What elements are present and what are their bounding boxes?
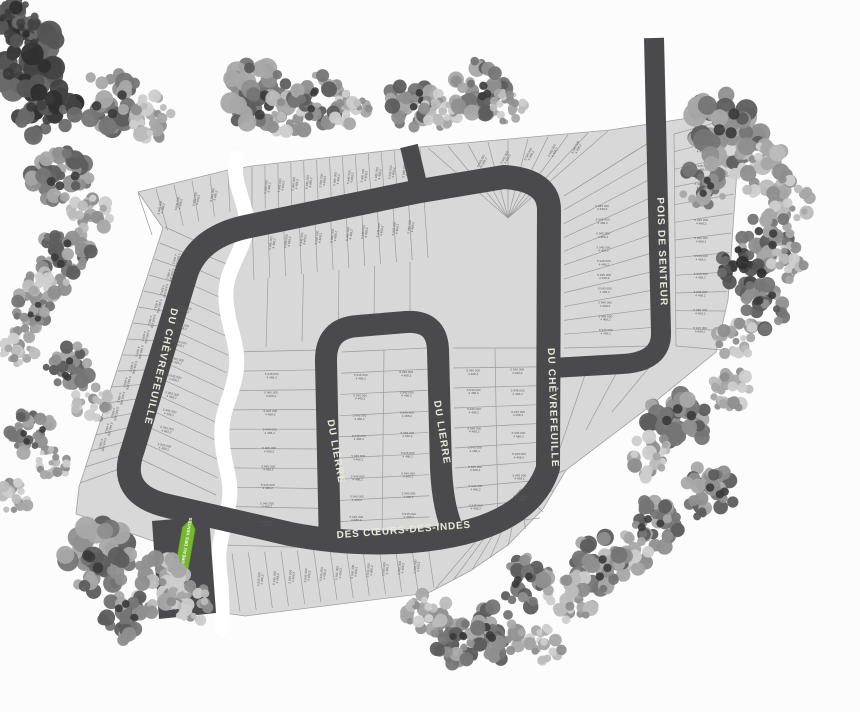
foliage-blob: [728, 381, 738, 391]
foliage-blob: [146, 130, 153, 137]
foliage-blob: [784, 265, 792, 273]
foliage-blob: [393, 80, 407, 94]
foliage-blob: [37, 21, 62, 46]
foliage-blob: [71, 181, 81, 191]
foliage-blob: [738, 137, 756, 155]
foliage-core: [23, 438, 30, 445]
foliage-blob: [631, 450, 639, 458]
foliage-blob: [717, 268, 727, 278]
tree-cluster: [0, 478, 33, 513]
foliage-blob: [727, 396, 739, 408]
foliage-blob: [166, 109, 175, 118]
foliage-blob: [62, 248, 74, 260]
foliage-blob: [277, 98, 285, 106]
foliage-blob: [562, 615, 571, 624]
lot-number-label: 5 945 0004 468,2: [469, 503, 483, 510]
foliage-blob: [102, 390, 112, 400]
foliage-blob: [23, 331, 35, 343]
foliage-blob: [343, 117, 356, 130]
foliage-blob: [177, 592, 185, 600]
foliage-blob: [48, 446, 54, 452]
tree-cluster: [522, 624, 567, 666]
lot-number-label: 5 945 0004 468,2: [467, 407, 481, 414]
foliage-blob: [195, 615, 206, 626]
foliage-blob: [31, 13, 39, 21]
foliage-blob: [740, 335, 746, 341]
foliage-blob: [385, 98, 400, 113]
foliage-core: [42, 115, 52, 125]
foliage-blob: [434, 614, 447, 627]
foliage-blob: [246, 87, 260, 101]
foliage-blob: [52, 150, 61, 159]
lot-number-label: 5 945 0004 468,2: [468, 465, 482, 472]
foliage-blob: [642, 465, 653, 476]
foliage-blob: [81, 109, 99, 127]
lot-number-label: 5 945 0004 468,2: [401, 471, 415, 478]
foliage-blob: [652, 453, 660, 461]
foliage-blob: [773, 305, 780, 312]
foliage-blob: [597, 532, 611, 546]
foliage-blob: [438, 633, 450, 645]
lot-number-label: 5 945 0004 468,2: [400, 431, 414, 438]
foliage-blob: [766, 186, 780, 200]
foliage-blob: [400, 91, 413, 104]
foliage-blob: [682, 419, 697, 434]
foliage-core: [66, 357, 73, 364]
foliage-blob: [794, 185, 803, 194]
foliage-core: [5, 9, 12, 16]
foliage-blob: [267, 121, 279, 133]
foliage-blob: [39, 151, 54, 166]
road-path-1: [409, 146, 420, 192]
foliage-blob: [97, 523, 113, 539]
foliage-blob: [36, 100, 46, 110]
foliage-blob: [779, 191, 788, 200]
foliage-blob: [95, 76, 108, 89]
foliage-blob: [694, 492, 708, 506]
foliage-core: [26, 102, 36, 112]
foliage-blob: [781, 248, 787, 254]
foliage-core: [687, 411, 697, 421]
foliage-core: [525, 573, 533, 581]
foliage-core: [64, 374, 71, 381]
foliage-blob: [748, 214, 759, 225]
subdivision-plan-svg: 5 945 0004 468,25 945 0004 468,25 945 00…: [0, 0, 860, 712]
foliage-blob: [671, 512, 681, 522]
foliage-blob: [519, 555, 530, 566]
foliage-blob: [316, 69, 329, 82]
lot-number-label: 5 945 0004 468,2: [400, 411, 414, 418]
foliage-blob: [80, 523, 91, 534]
foliage-blob: [12, 494, 22, 504]
foliage-blob: [36, 457, 43, 464]
foliage-blob: [296, 122, 311, 137]
foliage-core: [714, 124, 725, 135]
lot-number-label: 5 945 0004 468,2: [351, 454, 365, 461]
foliage-blob: [91, 382, 101, 392]
foliage-core: [35, 316, 41, 322]
foliage-blob: [642, 430, 656, 444]
foliage-blob: [747, 322, 757, 332]
foliage-blob: [223, 70, 240, 87]
foliage-blob: [431, 99, 441, 109]
foliage-blob: [34, 413, 46, 425]
foliage-blob: [100, 205, 107, 212]
tree-cluster: [43, 340, 96, 391]
foliage-blob: [739, 370, 752, 383]
foliage-blob: [51, 354, 62, 365]
foliage-core: [63, 239, 71, 247]
foliage-blob: [364, 105, 372, 113]
foliage-blob: [662, 441, 669, 448]
foliage-blob: [14, 313, 21, 320]
foliage-blob: [535, 572, 552, 589]
foliage-blob: [138, 594, 146, 602]
lot-number-label: 5 945 0004 468,2: [510, 368, 524, 375]
foliage-blob: [688, 195, 696, 203]
foliage-blob: [16, 412, 26, 422]
foliage-blob: [519, 99, 527, 107]
foliage-core: [459, 632, 466, 639]
foliage-blob: [305, 112, 314, 121]
foliage-blob: [611, 547, 628, 564]
foliage-blob: [139, 610, 147, 618]
lot-number-label: 5 945 0004 468,2: [511, 389, 525, 396]
foliage-blob: [690, 479, 705, 494]
site-plan-map: 5 945 0004 468,25 945 0004 468,25 945 00…: [0, 0, 860, 712]
foliage-blob: [679, 392, 695, 408]
foliage-core: [0, 14, 7, 21]
lot-number-label: 5 945 0004 468,2: [264, 391, 278, 398]
lot-number-label: 5 945 0004 468,2: [511, 410, 525, 417]
tree-cluster: [11, 74, 84, 145]
foliage-blob: [467, 80, 475, 88]
foliage-blob: [35, 272, 44, 281]
foliage-blob: [774, 316, 783, 325]
foliage-blob: [778, 175, 786, 183]
foliage-core: [755, 227, 763, 235]
lot-number-label: 5 945 0004 468,2: [265, 372, 279, 379]
foliage-blob: [766, 258, 777, 269]
foliage-blob: [682, 162, 697, 177]
lot-number-label: 5 945 0004 468,2: [261, 464, 275, 471]
foliage-blob: [82, 358, 92, 368]
foliage-blob: [503, 610, 513, 620]
foliage-core: [51, 253, 59, 261]
foliage-blob: [117, 634, 129, 646]
foliage-core: [71, 172, 80, 181]
foliage-blob: [77, 261, 86, 270]
foliage-blob: [608, 574, 619, 585]
foliage-blob: [30, 84, 47, 101]
foliage-blob: [439, 597, 452, 610]
lot-number-label: 5 945 0004 468,2: [513, 494, 527, 501]
foliage-blob: [74, 373, 89, 388]
foliage-blob: [8, 333, 20, 345]
lot-number-label: 5 945 0004 468,2: [694, 254, 708, 261]
foliage-blob: [85, 571, 95, 581]
foliage-blob: [135, 576, 150, 591]
foliage-blob: [71, 405, 80, 414]
foliage-core: [638, 523, 646, 531]
tree-cluster: [56, 515, 137, 598]
foliage-blob: [176, 612, 183, 619]
foliage-blob: [657, 539, 673, 555]
foliage-blob: [694, 430, 709, 445]
foliage-blob: [791, 242, 798, 249]
foliage-blob: [184, 580, 196, 592]
foliage-core: [514, 576, 522, 584]
foliage-blob: [56, 171, 65, 180]
foliage-blob: [54, 378, 62, 386]
foliage-blob: [353, 99, 361, 107]
lot-number-label: 5 945 0004 468,2: [597, 259, 611, 266]
foliage-blob: [43, 364, 50, 371]
foliage-blob: [408, 599, 415, 606]
foliage-core: [93, 563, 104, 574]
foliage-blob: [13, 478, 23, 488]
foliage-blob: [5, 345, 13, 353]
foliage-blob: [727, 496, 738, 507]
foliage-blob: [801, 208, 807, 214]
foliage-blob: [44, 277, 52, 285]
foliage-blob: [334, 117, 342, 125]
lot-number-label: 5 945 0004 468,2: [353, 414, 367, 421]
foliage-blob: [499, 118, 506, 125]
foliage-blob: [407, 618, 414, 625]
lot-number-label: 5 945 0004 468,2: [400, 390, 414, 397]
foliage-blob: [230, 96, 247, 113]
foliage-blob: [75, 210, 85, 220]
foliage-blob: [632, 436, 642, 446]
foliage-core: [115, 604, 123, 612]
foliage-blob: [52, 467, 62, 477]
foliage-blob: [97, 220, 111, 234]
foliage-blob: [459, 652, 473, 666]
foliage-core: [769, 229, 777, 237]
foliage-blob: [16, 446, 30, 460]
lot-number-label: 5 945 0004 468,2: [597, 245, 611, 252]
foliage-core: [449, 633, 456, 640]
foliage-blob: [24, 356, 31, 363]
foliage-core: [700, 190, 707, 197]
foliage-blob: [776, 261, 784, 269]
foliage-blob: [49, 230, 61, 242]
foliage-core: [57, 260, 65, 268]
tree-cluster: [501, 553, 555, 615]
foliage-blob: [581, 554, 596, 569]
tree-cluster: [490, 89, 529, 125]
foliage-blob: [425, 614, 434, 623]
lot-number-label: 5 945 0004 468,2: [349, 515, 363, 522]
foliage-blob: [271, 111, 278, 118]
foliage-core: [479, 82, 487, 90]
foliage-core: [117, 90, 127, 100]
foliage-blob: [56, 546, 74, 564]
tree-cluster: [709, 368, 754, 412]
foliage-core: [768, 291, 776, 299]
foliage-blob: [32, 442, 39, 449]
foliage-blob: [580, 539, 595, 554]
lot-number-label: 5 945 0004 468,2: [352, 434, 366, 441]
foliage-blob: [148, 89, 161, 102]
foliage-blob: [115, 573, 127, 585]
foliage-blob: [793, 214, 800, 221]
foliage-core: [122, 600, 130, 608]
lot-number-label: 5 945 0004 468,2: [599, 314, 613, 321]
foliage-blob: [413, 616, 425, 628]
lot-number-label: 5 945 0004 468,2: [261, 483, 275, 490]
foliage-blob: [662, 530, 673, 541]
foliage-blob: [60, 340, 73, 353]
foliage-blob: [708, 469, 719, 480]
lot-number-label: 5 945 0004 468,2: [401, 451, 415, 458]
foliage-blob: [529, 597, 538, 606]
foliage-blob: [15, 115, 28, 128]
foliage-blob: [693, 512, 701, 520]
foliage-blob: [3, 507, 9, 513]
lot-number-label: 5 945 0004 468,2: [694, 218, 708, 225]
foliage-blob: [457, 82, 468, 93]
foliage-blob: [757, 268, 767, 278]
lot-number-label: 5 945 0004 468,2: [598, 301, 612, 308]
foliage-blob: [746, 281, 755, 290]
foliage-blob: [451, 99, 466, 114]
foliage-core: [488, 634, 496, 642]
foliage-blob: [129, 120, 138, 129]
foliage-blob: [444, 114, 451, 121]
foliage-blob: [244, 63, 255, 74]
foliage-core: [47, 177, 56, 186]
foliage-blob: [84, 244, 98, 258]
foliage-core: [706, 483, 714, 491]
foliage-blob: [698, 404, 710, 416]
foliage-core: [39, 426, 46, 433]
foliage-core: [416, 89, 424, 97]
foliage-blob: [540, 638, 547, 645]
foliage-blob: [754, 278, 766, 290]
foliage-blob: [556, 645, 567, 656]
foliage-blob: [159, 578, 167, 586]
foliage-blob: [279, 124, 293, 138]
foliage-blob: [506, 646, 515, 655]
foliage-core: [756, 297, 764, 305]
foliage-core: [255, 110, 265, 120]
foliage-core: [478, 92, 486, 100]
foliage-blob: [408, 121, 419, 132]
foliage-blob: [201, 589, 209, 597]
foliage-blob: [663, 514, 672, 523]
foliage-blob: [565, 602, 574, 611]
foliage-blob: [238, 113, 256, 131]
foliage-core: [662, 416, 672, 426]
foliage-blob: [166, 597, 176, 607]
foliage-core: [108, 109, 118, 119]
foliage-blob: [273, 70, 282, 79]
foliage-blob: [423, 115, 434, 126]
foliage-blob: [62, 149, 72, 159]
foliage-blob: [149, 118, 160, 129]
tree-cluster: [23, 145, 95, 207]
foliage-blob: [342, 110, 350, 118]
lot-number-label: 5 945 0004 468,2: [467, 426, 481, 433]
foliage-blob: [52, 454, 59, 461]
foliage-blob: [79, 580, 91, 592]
foliage-core: [746, 261, 753, 268]
foliage-blob: [86, 72, 96, 82]
lot-number-label: 5 945 0004 468,2: [512, 473, 526, 480]
foliage-blob: [19, 313, 28, 322]
foliage-blob: [759, 323, 771, 335]
lot-number-label: 5 945 0004 468,2: [262, 446, 276, 453]
foliage-blob: [62, 93, 77, 108]
foliage-blob: [740, 165, 757, 182]
foliage-core: [45, 95, 55, 105]
foliage-blob: [719, 193, 726, 200]
foliage-blob: [733, 338, 740, 345]
foliage-blob: [461, 620, 470, 629]
foliage-blob: [485, 641, 501, 657]
foliage-blob: [141, 103, 148, 110]
foliage-blob: [421, 597, 428, 604]
foliage-blob: [424, 603, 432, 611]
foliage-core: [656, 520, 664, 528]
foliage-blob: [73, 341, 83, 351]
lot-number-label: 5 945 0004 468,2: [694, 272, 708, 279]
tree-cluster: [97, 591, 158, 646]
foliage-blob: [433, 114, 444, 125]
foliage-blob: [181, 598, 194, 611]
lot-number-label: 5 945 0004 468,2: [694, 236, 708, 243]
tree-cluster: [129, 89, 175, 143]
foliage-core: [596, 572, 604, 580]
foliage-core: [3, 68, 15, 80]
lot-number-label: 5 945 0004 468,2: [598, 287, 612, 294]
foliage-blob: [508, 596, 517, 605]
foliage-blob: [511, 114, 520, 123]
foliage-core: [644, 515, 652, 523]
foliage-blob: [549, 647, 558, 656]
foliage-blob: [802, 187, 813, 198]
lot-number-label: 5 945 0004 468,2: [351, 474, 365, 481]
foliage-core: [85, 552, 96, 563]
foliage-core: [92, 101, 102, 111]
lot-number-label: 5 945 0004 468,2: [596, 218, 610, 225]
foliage-blob: [679, 190, 687, 198]
foliage-blob: [742, 185, 752, 195]
lot-number-label: 5 945 0004 468,2: [512, 431, 526, 438]
foliage-blob: [746, 333, 755, 342]
foliage-blob: [200, 597, 208, 605]
foliage-core: [410, 103, 418, 111]
foliage-blob: [1, 1, 9, 9]
foliage-blob: [720, 372, 730, 382]
foliage-blob: [67, 107, 83, 123]
foliage-blob: [730, 347, 740, 357]
foliage-blob: [77, 200, 88, 211]
foliage-blob: [631, 562, 645, 576]
foliage-blob: [30, 346, 36, 352]
foliage-blob: [704, 156, 719, 171]
foliage-blob: [759, 214, 772, 227]
foliage-blob: [62, 459, 70, 467]
foliage-blob: [518, 107, 525, 114]
lot-number-label: 5 945 0004 468,2: [402, 492, 416, 499]
lot-number-label: 5 945 0004 468,2: [597, 273, 611, 280]
lot-number-label: 5 945 0004 468,2: [259, 520, 273, 527]
foliage-core: [603, 564, 611, 572]
lot-number-label: 5 945 0004 468,2: [466, 369, 480, 376]
